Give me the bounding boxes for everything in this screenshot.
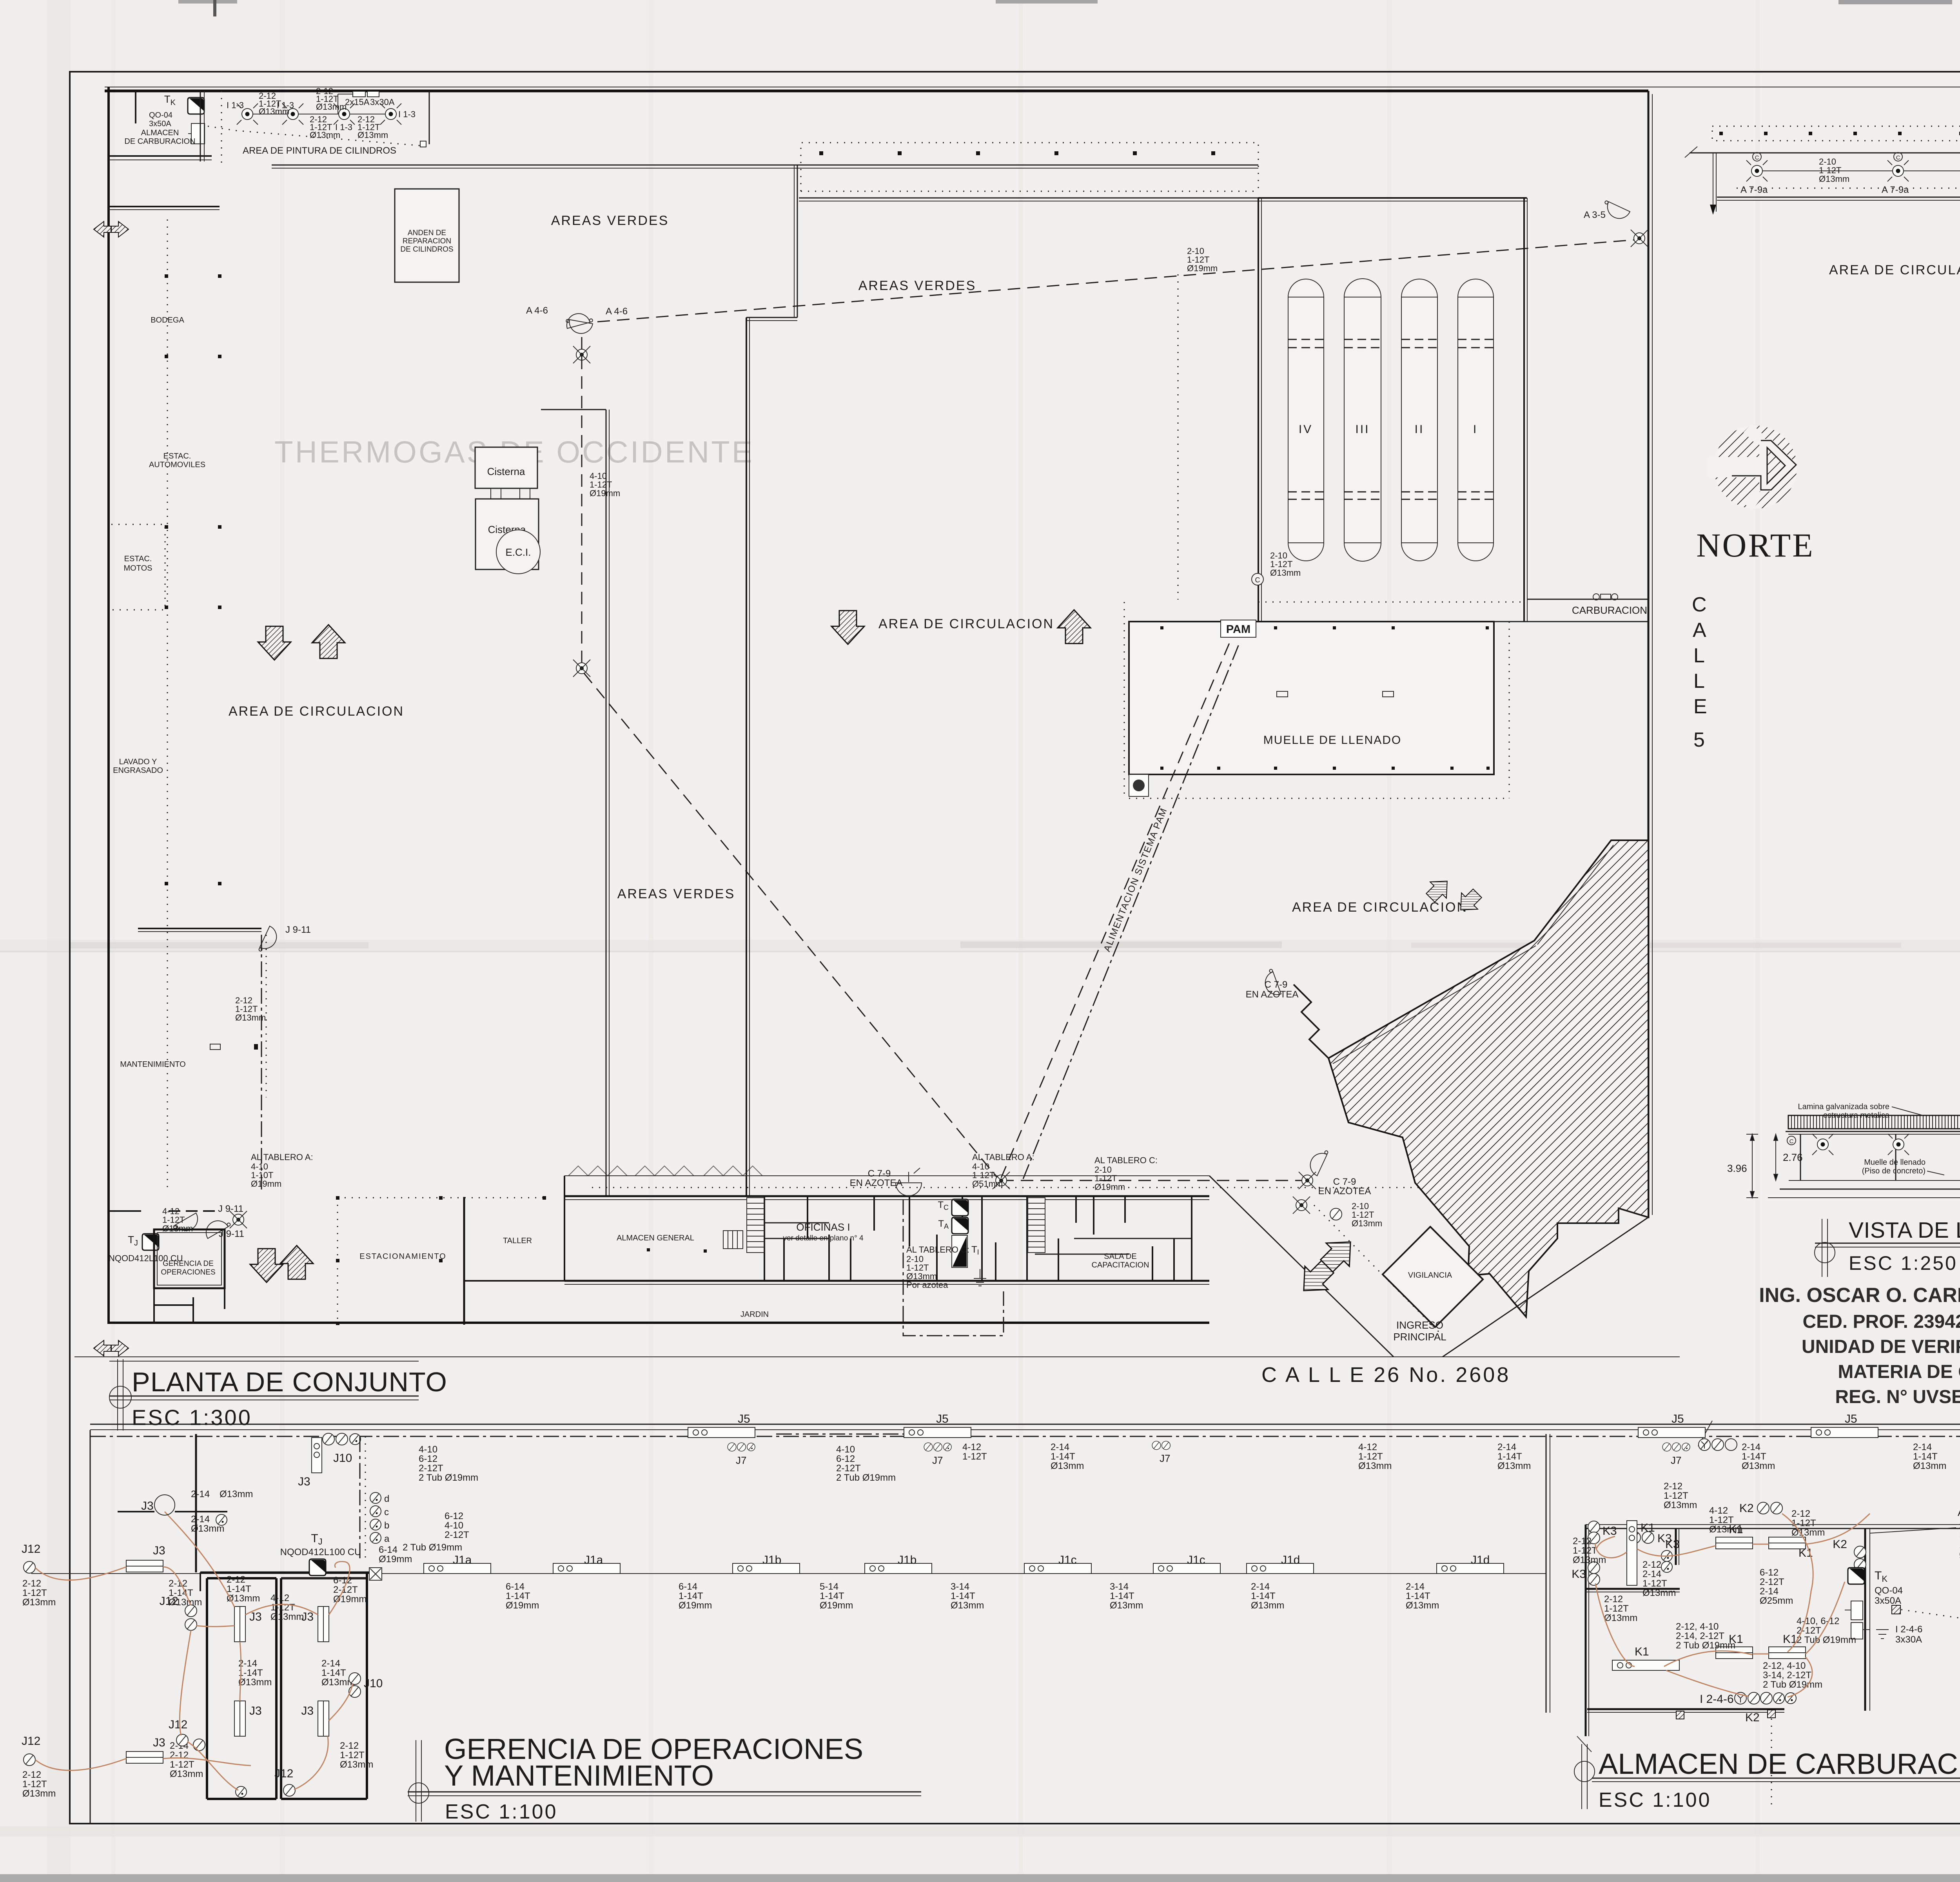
svg-text:J1d: J1d — [1471, 1554, 1490, 1567]
svg-text:J1a: J1a — [453, 1554, 472, 1567]
svg-text:4-12: 4-12 — [962, 1442, 981, 1452]
svg-text:3x30A: 3x30A — [370, 97, 395, 107]
svg-text:ESTAC.: ESTAC. — [124, 555, 152, 563]
svg-text:Ø13mm: Ø13mm — [1791, 1527, 1825, 1538]
svg-text:VISTA DE LUMINARIAS EN MUELLE: VISTA DE LUMINARIAS EN MUELLE DE LLENADO — [1849, 1218, 1960, 1243]
svg-text:3x30A: 3x30A — [1895, 1634, 1922, 1645]
svg-text:ING. OSCAR O. CARRILLO MIRANDA: ING. OSCAR O. CARRILLO MIRANDA — [1759, 1284, 1960, 1307]
svg-text:6-12: 6-12 — [419, 1454, 437, 1464]
svg-text:J1b: J1b — [898, 1554, 916, 1567]
svg-text:EN AZOTEA: EN AZOTEA — [1318, 1186, 1371, 1197]
svg-text:Ø13mm: Ø13mm — [170, 1769, 203, 1779]
svg-text:2-12: 2-12 — [1791, 1509, 1810, 1519]
svg-text:J7: J7 — [1671, 1454, 1681, 1466]
svg-text:J 9-11: J 9-11 — [218, 1204, 243, 1214]
svg-text:Ø13mm: Ø13mm — [1664, 1500, 1697, 1510]
svg-text:2-12: 2-12 — [227, 1574, 245, 1585]
svg-text:2x15A: 2x15A — [345, 97, 370, 107]
svg-text:1-12T: 1-12T — [22, 1588, 47, 1598]
svg-text:MUELLE DE LLENADO: MUELLE DE LLENADO — [1263, 734, 1401, 747]
svg-text:3-14: 3-14 — [1110, 1581, 1129, 1592]
svg-text:IV: IV — [1299, 423, 1313, 436]
svg-text:2-12: 2-12 — [170, 1750, 189, 1761]
svg-text:6-12: 6-12 — [333, 1575, 352, 1586]
svg-text:2-14, 2-12T: 2-14, 2-12T — [1676, 1631, 1724, 1641]
svg-text:Ø13mm: Ø13mm — [1604, 1613, 1637, 1623]
svg-text:1-12T: 1-12T — [270, 1602, 295, 1613]
svg-text:1-14T: 1-14T — [951, 1591, 975, 1601]
svg-text:1-14T: 1-14T — [506, 1591, 530, 1601]
svg-text:4-10: 4-10 — [445, 1520, 463, 1531]
svg-text:J10: J10 — [333, 1452, 352, 1465]
svg-text:Ø13mm: Ø13mm — [1358, 1461, 1392, 1471]
svg-text:Ø19mm: Ø19mm — [1094, 1182, 1125, 1192]
svg-text:PAM: PAM — [1226, 623, 1250, 636]
svg-text:I: I — [1473, 423, 1478, 436]
svg-text:2 Tub Ø19mm: 2 Tub Ø19mm — [403, 1542, 462, 1553]
svg-text:Ø13mm: Ø13mm — [1051, 1461, 1084, 1471]
svg-text:Ø13mm: Ø13mm — [951, 1600, 984, 1611]
svg-text:Ø13mm: Ø13mm — [1913, 1461, 1946, 1471]
svg-text:2-14: 2-14 — [1760, 1586, 1779, 1597]
svg-text:1-14T: 1-14T — [321, 1668, 346, 1678]
svg-text:UNIDAD DE VERIFICACION EN: UNIDAD DE VERIFICACION EN — [1802, 1336, 1960, 1357]
svg-text:AL TABLERO A:: AL TABLERO A: — [251, 1152, 313, 1162]
svg-text:Ø19mm: Ø19mm — [1187, 263, 1218, 273]
svg-text:MATERIA DE GAS L. P.: MATERIA DE GAS L. P. — [1838, 1362, 1960, 1382]
svg-text:J12: J12 — [160, 1595, 178, 1608]
svg-text:J12: J12 — [22, 1735, 40, 1748]
svg-text:AUTOMOVILES: AUTOMOVILES — [149, 461, 205, 469]
svg-text:C: C — [1255, 576, 1260, 584]
svg-text:K3: K3 — [1665, 1538, 1680, 1551]
svg-text:J12: J12 — [169, 1718, 187, 1731]
svg-text:NQOD412L100 CU: NQOD412L100 CU — [280, 1547, 361, 1557]
svg-text:5-14: 5-14 — [820, 1581, 838, 1592]
svg-text:1-14T: 1-14T — [1251, 1591, 1276, 1601]
svg-text:2-14: 2-14 — [191, 1514, 210, 1525]
svg-text:DE CILINDROS: DE CILINDROS — [400, 245, 453, 254]
svg-text:AL TABLERO C:: AL TABLERO C: — [1094, 1155, 1158, 1165]
svg-text:3-14: 3-14 — [951, 1581, 969, 1592]
svg-text:4-12: 4-12 — [270, 1593, 289, 1603]
svg-text:K2: K2 — [1745, 1711, 1760, 1724]
svg-text:2-14: 2-14 — [1251, 1581, 1270, 1592]
svg-text:ALMACEN GENERAL: ALMACEN GENERAL — [617, 1234, 694, 1242]
svg-text:Muelle de llenado: Muelle de llenado — [1864, 1158, 1926, 1167]
svg-text:Ø13mm: Ø13mm — [270, 1612, 304, 1622]
svg-text:2-14: 2-14 — [191, 1489, 210, 1499]
svg-text:J 9-11: J 9-11 — [285, 925, 311, 935]
svg-text:3.96: 3.96 — [1727, 1162, 1747, 1174]
svg-text:CED. PROF. 2394220 DGP-SEP: CED. PROF. 2394220 DGP-SEP — [1803, 1311, 1960, 1332]
svg-text:C: C — [1789, 1138, 1794, 1145]
svg-text:4-12: 4-12 — [1709, 1505, 1728, 1516]
svg-text:K3: K3 — [1572, 1568, 1586, 1581]
svg-text:VIGILANCIA: VIGILANCIA — [1408, 1271, 1452, 1280]
svg-text:J1d: J1d — [1281, 1554, 1300, 1567]
svg-text:ANDEN DE: ANDEN DE — [408, 229, 446, 237]
svg-text:A 7-9a: A 7-9a — [1740, 185, 1768, 195]
svg-text:a: a — [384, 1534, 390, 1544]
svg-text:A 3-5: A 3-5 — [1584, 210, 1606, 220]
svg-text:QO-04: QO-04 — [1875, 1585, 1903, 1596]
svg-text:Ø13mm: Ø13mm — [1642, 1588, 1676, 1598]
svg-text:Ø13mm: Ø13mm — [310, 130, 340, 140]
svg-text:1-12T: 1-12T — [1573, 1545, 1597, 1556]
svg-text:2-12, 4-10: 2-12, 4-10 — [1676, 1621, 1719, 1632]
svg-text:2-12: 2-12 — [22, 1770, 41, 1780]
svg-text:EN AZOTEA: EN AZOTEA — [850, 1178, 903, 1188]
svg-text:2-12T: 2-12T — [445, 1530, 469, 1540]
svg-text:b: b — [384, 1520, 389, 1531]
svg-text:1-14T: 1-14T — [227, 1584, 251, 1594]
svg-text:ENGRASADO: ENGRASADO — [113, 766, 163, 775]
svg-text:Ø13mm: Ø13mm — [1497, 1461, 1531, 1471]
svg-text:Ø13mm: Ø13mm — [22, 1597, 56, 1608]
svg-text:J1a: J1a — [584, 1554, 603, 1567]
svg-text:3x50A: 3x50A — [1875, 1596, 1901, 1606]
svg-text:L: L — [1693, 644, 1705, 667]
svg-text:GERENCIA DE: GERENCIA DE — [163, 1260, 214, 1268]
svg-text:Ø13mm: Ø13mm — [1819, 174, 1849, 184]
svg-text:CARBURACION: CARBURACION — [1572, 604, 1647, 616]
svg-text:estructura metalica: estructura metalica — [1823, 1111, 1890, 1120]
svg-text:ESTACIONAMIENTO: ESTACIONAMIENTO — [359, 1252, 446, 1261]
svg-text:2-12, 4-10: 2-12, 4-10 — [1763, 1661, 1806, 1671]
svg-text:1-14T: 1-14T — [1110, 1591, 1134, 1601]
svg-text:AL TABLERO A:: AL TABLERO A: — [972, 1152, 1034, 1162]
svg-text:Ø19mm: Ø19mm — [251, 1179, 281, 1189]
svg-text:AREA DE CIRCULACION: AREA DE CIRCULACION — [878, 616, 1054, 631]
svg-text:2 Tub Ø19mm: 2 Tub Ø19mm — [1797, 1635, 1856, 1645]
svg-text:1-14T: 1-14T — [1913, 1451, 1938, 1462]
svg-text:OFICINAS I: OFICINAS I — [796, 1221, 850, 1233]
svg-text:1-14T: 1-14T — [679, 1591, 703, 1601]
svg-text:QO-04: QO-04 — [149, 111, 172, 120]
svg-text:2 Tub Ø19mm: 2 Tub Ø19mm — [1676, 1640, 1735, 1651]
svg-text:ALMACEN DE CARBURACION: ALMACEN DE CARBURACION — [1599, 1748, 1960, 1780]
svg-text:2-14: 2-14 — [1051, 1442, 1069, 1452]
svg-text:2-12: 2-12 — [1642, 1559, 1661, 1570]
svg-text:C 7-9: C 7-9 — [1333, 1177, 1356, 1187]
svg-text:J3: J3 — [249, 1704, 262, 1717]
svg-text:1-12T: 1-12T — [170, 1759, 194, 1770]
svg-text:1-14T: 1-14T — [820, 1591, 844, 1601]
svg-text:2 Tub Ø19mm: 2 Tub Ø19mm — [836, 1472, 896, 1483]
svg-text:2-12: 2-12 — [340, 1741, 359, 1751]
svg-text:AREAS VERDES: AREAS VERDES — [617, 887, 735, 901]
svg-text:E: E — [1693, 695, 1707, 718]
svg-text:Por azotea: Por azotea — [906, 1280, 948, 1290]
svg-text:1-12T: 1-12T — [962, 1451, 987, 1462]
svg-text:PRINCIPAL: PRINCIPAL — [1393, 1331, 1446, 1343]
svg-text:ESTAC.: ESTAC. — [163, 452, 191, 461]
svg-text:I 1-3: I 1-3 — [227, 100, 244, 110]
svg-text:2-14: 2-14 — [1913, 1442, 1932, 1452]
svg-text:AREA DE PINTURA DE CILINDROS: AREA DE PINTURA DE CILINDROS — [243, 145, 396, 156]
svg-text:3x50A: 3x50A — [149, 120, 171, 128]
svg-text:C 7-9: C 7-9 — [1265, 979, 1288, 990]
svg-text:INGRESO: INGRESO — [1396, 1319, 1443, 1331]
svg-text:Ø13mm: Ø13mm — [1352, 1218, 1382, 1228]
svg-text:Ø13mm: Ø13mm — [340, 1759, 373, 1770]
svg-text:d: d — [384, 1494, 389, 1504]
svg-text:2 Tub Ø19mm: 2 Tub Ø19mm — [1763, 1679, 1822, 1690]
svg-text:Ø13mm: Ø13mm — [358, 130, 388, 140]
svg-text:AREA DE CIRCULACION: AREA DE CIRCULACION — [1292, 900, 1468, 915]
svg-text:2-14: 2-14 — [1642, 1569, 1661, 1579]
svg-text:ESC 1:100: ESC 1:100 — [445, 1800, 558, 1823]
svg-text:1-12T: 1-12T — [1664, 1490, 1688, 1501]
svg-text:E.C.I.: E.C.I. — [505, 546, 531, 558]
svg-text:Ø13mm: Ø13mm — [316, 102, 347, 112]
svg-text:C A L L E 26 No. 2608: C A L L E 26 No. 2608 — [1261, 1363, 1510, 1387]
svg-text:ALMACEN: ALMACEN — [141, 129, 179, 137]
svg-text:Ø19mm: Ø19mm — [679, 1600, 712, 1611]
svg-text:3-14, 2-12T: 3-14, 2-12T — [1763, 1670, 1811, 1681]
svg-text:1-12T: 1-12T — [22, 1779, 47, 1790]
svg-text:2-12T: 2-12T — [419, 1463, 443, 1474]
svg-text:JARDIN: JARDIN — [740, 1310, 769, 1319]
svg-text:2 Tub Ø19mm: 2 Tub Ø19mm — [419, 1472, 478, 1483]
svg-text:J5: J5 — [1671, 1412, 1684, 1425]
svg-text:Ø13mm: Ø13mm — [235, 1013, 266, 1023]
svg-text:CAPACITACION: CAPACITACION — [1091, 1261, 1149, 1269]
svg-text:SALA DE: SALA DE — [1104, 1252, 1136, 1261]
svg-text:1-14T: 1-14T — [238, 1668, 263, 1678]
svg-text:AREA DE CIRCULACION: AREA DE CIRCULACION — [229, 704, 404, 719]
svg-text:Ø19mm: Ø19mm — [506, 1600, 539, 1611]
svg-text:MANTENIMIENTO: MANTENIMIENTO — [120, 1060, 185, 1069]
svg-text:2-14: 2-14 — [1742, 1442, 1760, 1452]
svg-text:AREAS VERDES: AREAS VERDES — [551, 213, 669, 228]
svg-text:ESC 1:250: ESC 1:250 — [1849, 1252, 1958, 1274]
svg-text:Ø13mm: Ø13mm — [1251, 1600, 1284, 1611]
svg-text:(Piso de concreto): (Piso de concreto) — [1862, 1167, 1926, 1175]
svg-text:Ø19mm: Ø19mm — [379, 1554, 412, 1565]
svg-text:MOTOS: MOTOS — [124, 564, 152, 573]
svg-text:LAVADO Y: LAVADO Y — [119, 758, 157, 766]
svg-text:III: III — [1355, 423, 1370, 436]
svg-text:J3: J3 — [301, 1704, 314, 1717]
svg-text:NORTE: NORTE — [1696, 526, 1814, 564]
svg-text:Y MANTENIMIENTO: Y MANTENIMIENTO — [444, 1759, 714, 1792]
svg-text:Ø13mm: Ø13mm — [1406, 1600, 1439, 1611]
svg-text:L: L — [1693, 670, 1705, 693]
svg-text:C: C — [1692, 593, 1707, 616]
svg-text:4-10, 6-12: 4-10, 6-12 — [1797, 1616, 1839, 1626]
svg-text:Ø13mm: Ø13mm — [1709, 1524, 1742, 1535]
svg-text:J7: J7 — [736, 1454, 746, 1466]
svg-text:2-12: 2-12 — [1664, 1481, 1682, 1492]
svg-text:J10: J10 — [364, 1677, 383, 1690]
svg-text:Ø13mm: Ø13mm — [220, 1489, 253, 1499]
svg-text:A 7-9a: A 7-9a — [1882, 185, 1909, 195]
svg-text:4-12: 4-12 — [1358, 1442, 1377, 1452]
svg-text:6-12: 6-12 — [836, 1454, 855, 1464]
svg-text:2-12: 2-12 — [1573, 1536, 1592, 1547]
svg-text:I 2-4-6: I 2-4-6 — [1895, 1624, 1922, 1635]
svg-text:A CASETA DE PINTURA: A CASETA DE PINTURA — [1958, 1507, 1960, 1518]
svg-text:J1c: J1c — [1187, 1554, 1205, 1567]
svg-text:C 7-9: C 7-9 — [868, 1168, 891, 1179]
svg-text:AREA DE CIRCULACION: AREA DE CIRCULACION — [1829, 263, 1960, 277]
svg-text:6-14: 6-14 — [506, 1581, 524, 1592]
svg-text:ESC 1:300: ESC 1:300 — [132, 1405, 252, 1430]
svg-text:EN AZOTEA: EN AZOTEA — [1246, 989, 1299, 1000]
svg-text:Ø13mm: Ø13mm — [259, 107, 289, 116]
svg-text:4-10: 4-10 — [419, 1444, 437, 1455]
svg-text:J5: J5 — [936, 1412, 949, 1425]
svg-text:1-14T: 1-14T — [1742, 1451, 1766, 1462]
svg-text:Ø13mm: Ø13mm — [22, 1788, 56, 1799]
svg-text:Ø13mm: Ø13mm — [1270, 568, 1301, 578]
svg-text:DE CARBURACION: DE CARBURACION — [124, 137, 195, 146]
svg-text:Ø51mm: Ø51mm — [972, 1179, 1003, 1189]
svg-text:6-12: 6-12 — [1760, 1567, 1779, 1578]
svg-text:Ø25mm: Ø25mm — [1760, 1596, 1793, 1606]
svg-text:ESC 1:100: ESC 1:100 — [1599, 1789, 1711, 1811]
svg-text:6-14: 6-14 — [379, 1545, 397, 1555]
svg-text:2-14: 2-14 — [1406, 1581, 1425, 1592]
svg-text:Ø19mm: Ø19mm — [590, 488, 620, 498]
svg-text:AREAS VERDES: AREAS VERDES — [858, 278, 976, 293]
svg-text:1-14T: 1-14T — [1406, 1591, 1430, 1601]
svg-text:2-12T: 2-12T — [836, 1463, 861, 1474]
svg-text:A 4-6: A 4-6 — [606, 306, 628, 317]
svg-text:AL TABLERO C:: AL TABLERO C: — [906, 1245, 969, 1255]
svg-text:c: c — [384, 1507, 389, 1518]
svg-text:1-14T: 1-14T — [1497, 1451, 1522, 1462]
svg-text:J3: J3 — [153, 1544, 165, 1557]
svg-text:K1: K1 — [1641, 1521, 1655, 1534]
svg-text:1-12T: 1-12T — [1791, 1518, 1816, 1528]
svg-text:J1c: J1c — [1058, 1554, 1077, 1567]
svg-text:BODEGA: BODEGA — [151, 316, 184, 325]
svg-text:REPARACION: REPARACION — [403, 237, 451, 245]
svg-text:Cisterna: Cisterna — [487, 466, 525, 477]
svg-text:Ø19mm: Ø19mm — [820, 1600, 853, 1611]
svg-text:J7: J7 — [932, 1454, 943, 1466]
svg-text:REG. N° UVSELP 075-C: REG. N° UVSELP 075-C — [1835, 1387, 1960, 1407]
svg-text:K2: K2 — [1833, 1538, 1847, 1551]
svg-text:J3: J3 — [153, 1736, 165, 1749]
svg-text:J3: J3 — [298, 1475, 310, 1488]
svg-text:1-12T: 1-12T — [1709, 1515, 1734, 1525]
svg-text:2.76: 2.76 — [1783, 1151, 1803, 1163]
svg-text:1-14T: 1-14T — [1051, 1451, 1075, 1462]
svg-text:J5: J5 — [738, 1412, 750, 1425]
svg-text:Ø13mm: Ø13mm — [238, 1677, 272, 1688]
svg-text:K1: K1 — [1635, 1645, 1649, 1658]
svg-text:C: C — [1755, 154, 1759, 161]
svg-text:2-14: 2-14 — [1497, 1442, 1516, 1452]
svg-text:1-12T: 1-12T — [1642, 1578, 1667, 1589]
svg-text:K2: K2 — [1739, 1502, 1754, 1515]
svg-text:K3: K3 — [1602, 1525, 1617, 1538]
svg-text:PLANTA DE CONJUNTO: PLANTA DE CONJUNTO — [132, 1367, 447, 1397]
svg-text:ver detalle en plano n° 4: ver detalle en plano n° 4 — [783, 1234, 864, 1242]
svg-text:J12: J12 — [22, 1543, 40, 1556]
svg-text:6-14: 6-14 — [679, 1581, 697, 1592]
svg-text:J5: J5 — [1845, 1412, 1857, 1425]
svg-text:Ø13mm: Ø13mm — [1742, 1461, 1775, 1471]
svg-text:Ø13mm: Ø13mm — [1110, 1600, 1143, 1611]
svg-text:2-12: 2-12 — [169, 1578, 187, 1589]
svg-text:6-12: 6-12 — [445, 1511, 463, 1521]
svg-text:A 4-6: A 4-6 — [526, 305, 548, 316]
svg-text:II: II — [1415, 423, 1425, 436]
svg-text:J12: J12 — [274, 1767, 293, 1780]
svg-text:C: C — [1896, 154, 1900, 161]
svg-text:2-14: 2-14 — [321, 1658, 340, 1669]
svg-text:I 2-4-6: I 2-4-6 — [1700, 1693, 1734, 1706]
svg-text:Ø13mm: Ø13mm — [1573, 1555, 1606, 1565]
svg-text:2-12: 2-12 — [22, 1578, 41, 1589]
svg-text:OPERACIONES: OPERACIONES — [161, 1268, 215, 1276]
svg-text:A: A — [1693, 619, 1706, 642]
svg-text:1-12T: 1-12T — [1604, 1603, 1629, 1614]
svg-text:TALLER: TALLER — [503, 1237, 532, 1245]
svg-text:1-12T: 1-12T — [340, 1750, 365, 1761]
svg-text:Lamina galvanizada sobre: Lamina galvanizada sobre — [1798, 1102, 1890, 1111]
svg-text:1-12T: 1-12T — [1358, 1451, 1383, 1462]
svg-text:4-10: 4-10 — [836, 1444, 855, 1455]
svg-text:I 1-3: I 1-3 — [398, 109, 416, 119]
svg-text:2-12: 2-12 — [1604, 1594, 1623, 1605]
svg-text:5: 5 — [1693, 729, 1705, 751]
svg-text:2-12T: 2-12T — [1760, 1577, 1784, 1587]
svg-text:J3: J3 — [141, 1499, 154, 1512]
svg-text:J7: J7 — [1160, 1452, 1170, 1464]
